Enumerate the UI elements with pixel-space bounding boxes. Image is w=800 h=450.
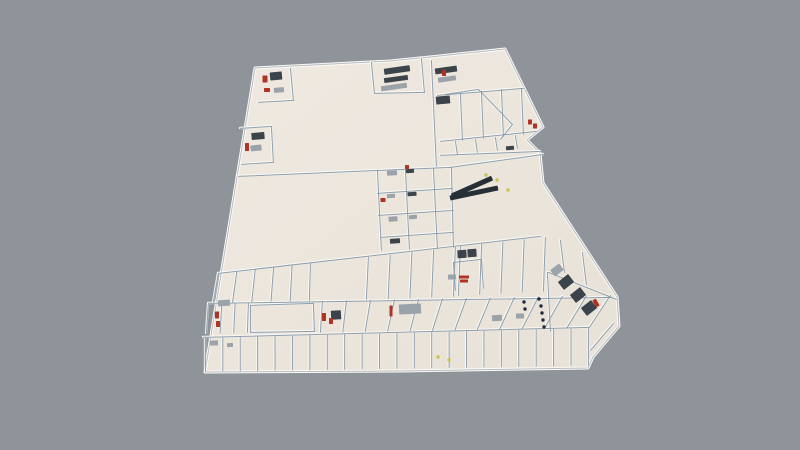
furniture-gray xyxy=(399,303,421,314)
furniture-gray xyxy=(210,340,218,345)
furniture-dark xyxy=(406,169,414,174)
furniture-gray xyxy=(388,216,397,222)
furniture-gray xyxy=(227,343,233,347)
furniture-dark xyxy=(251,132,265,140)
furniture-gray xyxy=(387,194,395,199)
red-accent xyxy=(405,165,409,169)
furniture-gray xyxy=(409,215,417,220)
red-accent xyxy=(459,276,469,279)
red-accent xyxy=(442,70,446,76)
furniture-dark xyxy=(467,249,476,257)
navy-marker-dot xyxy=(541,318,544,321)
furniture-dark xyxy=(390,238,400,244)
navy-marker-dot xyxy=(539,304,542,307)
navy-marker-dot xyxy=(540,311,543,314)
navy-marker-dot xyxy=(523,307,526,310)
red-accent xyxy=(263,76,268,83)
yellow-marker-dot xyxy=(506,188,509,191)
yellow-marker-dot xyxy=(436,355,439,358)
furniture-gray xyxy=(492,315,502,322)
red-accent xyxy=(245,143,249,151)
yellow-marker-dot xyxy=(447,358,450,361)
viewport-3d[interactable] xyxy=(0,0,800,450)
red-accent xyxy=(528,120,532,125)
red-accent xyxy=(322,313,326,321)
yellow-marker-dot xyxy=(495,178,498,181)
red-accent xyxy=(329,318,333,324)
furniture-gray xyxy=(218,300,230,307)
red-accent xyxy=(264,88,270,92)
navy-marker-dot xyxy=(537,297,540,300)
navy-marker-dot xyxy=(522,300,525,303)
furniture-gray xyxy=(387,170,397,176)
furniture-dark xyxy=(457,250,466,258)
red-accent xyxy=(215,312,219,319)
furniture-gray xyxy=(448,274,456,279)
furniture-dark xyxy=(506,146,514,151)
red-accent xyxy=(216,321,220,327)
furniture-gray xyxy=(274,87,284,93)
yellow-marker-dot xyxy=(484,173,487,176)
red-accent xyxy=(381,198,386,202)
furniture-gray xyxy=(516,313,524,318)
red-accent xyxy=(533,124,537,129)
floorplan-render xyxy=(0,0,800,450)
red-accent xyxy=(460,280,468,283)
furniture-gray xyxy=(250,145,261,152)
navy-marker-dot xyxy=(542,325,545,328)
red-accent xyxy=(390,306,393,317)
furniture-dark xyxy=(270,71,283,80)
furniture-dark xyxy=(436,95,451,104)
furniture-dark xyxy=(407,192,416,197)
